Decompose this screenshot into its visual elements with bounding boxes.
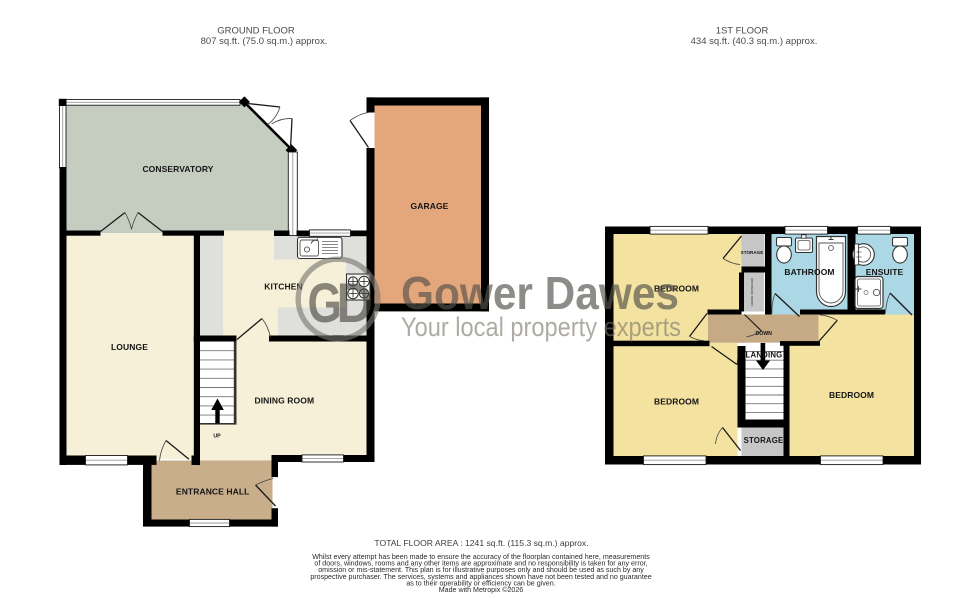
svg-text:434 sq.ft. (40.3 sq.m.) approx: 434 sq.ft. (40.3 sq.m.) approx. bbox=[691, 36, 818, 47]
svg-text:TOTAL FLOOR AREA : 1241 sq.ft.: TOTAL FLOOR AREA : 1241 sq.ft. (115.3 sq… bbox=[374, 538, 588, 548]
svg-text:1ST FLOOR: 1ST FLOOR bbox=[716, 26, 769, 37]
svg-text:807 sq.ft. (75.0 sq.m.) approx: 807 sq.ft. (75.0 sq.m.) approx. bbox=[201, 36, 328, 47]
svg-text:Made with Metropix ©2026: Made with Metropix ©2026 bbox=[439, 586, 524, 594]
svg-text:ENTRANCE HALL: ENTRANCE HALL bbox=[176, 487, 250, 497]
svg-text:LOUNGE: LOUNGE bbox=[111, 342, 148, 352]
svg-text:AIRING CUPBOARD: AIRING CUPBOARD bbox=[750, 277, 754, 307]
svg-text:D: D bbox=[337, 271, 374, 334]
svg-text:UP: UP bbox=[213, 434, 221, 440]
svg-text:CONSERVATORY: CONSERVATORY bbox=[142, 164, 213, 174]
svg-text:GROUND FLOOR: GROUND FLOOR bbox=[217, 26, 295, 37]
svg-text:DOWN: DOWN bbox=[755, 331, 772, 337]
svg-text:ENSUITE: ENSUITE bbox=[866, 267, 904, 277]
svg-text:STORAGE: STORAGE bbox=[741, 250, 764, 255]
svg-text:BATHROOM: BATHROOM bbox=[784, 267, 834, 277]
svg-text:DINING ROOM: DINING ROOM bbox=[254, 396, 314, 406]
svg-text:GARAGE: GARAGE bbox=[411, 201, 449, 211]
svg-text:LANDING: LANDING bbox=[746, 351, 783, 360]
svg-text:BEDROOM: BEDROOM bbox=[829, 390, 874, 400]
svg-text:Your local property experts: Your local property experts bbox=[401, 312, 681, 342]
svg-text:BEDROOM: BEDROOM bbox=[654, 397, 699, 407]
svg-text:STORAGE: STORAGE bbox=[744, 436, 784, 445]
